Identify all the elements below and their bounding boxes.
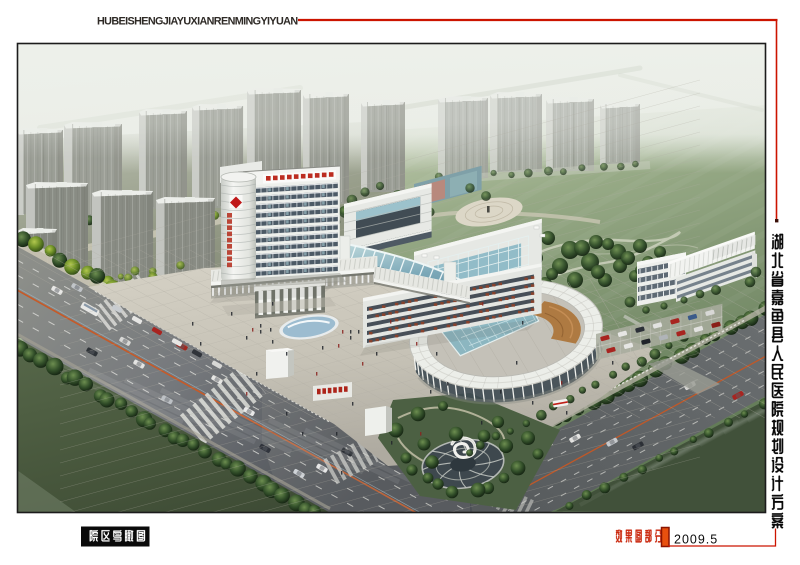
svg-text:HUBEISHENGJIAYUXIANRENMINGYIYU: HUBEISHENGJIAYUXIANRENMINGYIYUAN (97, 16, 298, 28)
svg-text:2009.5: 2009.5 (674, 533, 718, 547)
